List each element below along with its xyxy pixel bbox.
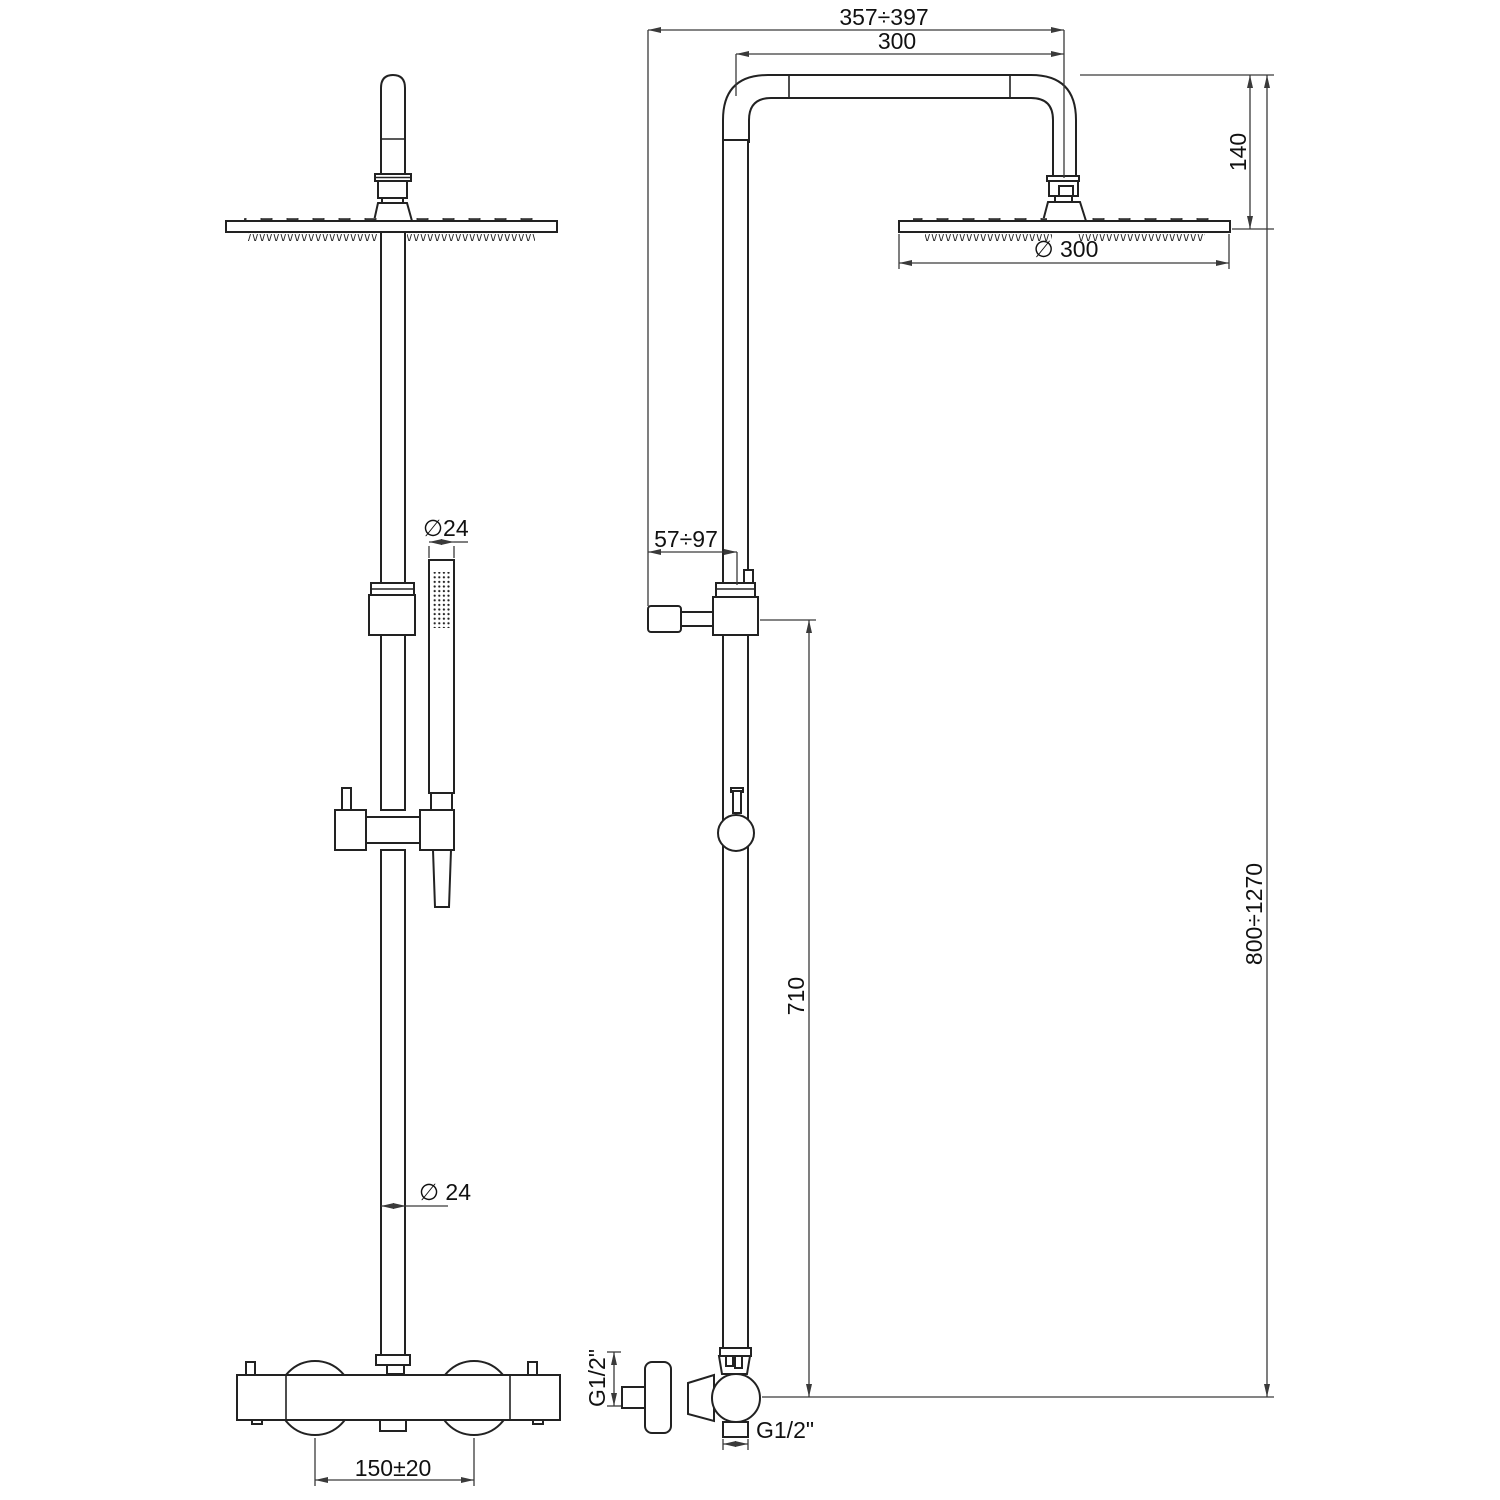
dim-label-column-height: 800÷1270 [1241, 863, 1267, 965]
side-riser-pipe [723, 140, 748, 1348]
dim-label-wall-distance: 57÷97 [654, 526, 718, 552]
front-handshower-spray-face [432, 572, 451, 628]
side-slider-body [713, 597, 758, 635]
front-holder-right-block [420, 810, 454, 850]
side-shower-arm [723, 75, 1076, 176]
dim-label-head-diameter: ∅ 300 [1034, 236, 1099, 262]
dimension-slider-height: 710 [760, 620, 816, 1397]
side-view [622, 75, 1230, 1437]
dim-label-side-inlet-thread: G1/2" [584, 1349, 610, 1407]
front-head-nut [378, 181, 407, 198]
side-holder-pin [733, 791, 741, 813]
dimension-column-height: 800÷1270 [762, 75, 1274, 1397]
side-mixer-nut [720, 1348, 751, 1356]
front-mixer-left-pin [246, 1362, 255, 1375]
dim-label-arm-length: 300 [878, 28, 916, 54]
front-mixer-left-foot [252, 1420, 262, 1424]
front-riser-upper [381, 232, 405, 583]
shower-column-drawing: 357÷397 300 140 800÷1270 710 57÷97 [0, 0, 1500, 1500]
side-head-cone [1043, 202, 1086, 221]
dim-label-riser-diameter: ∅ 24 [419, 1179, 471, 1205]
dim-label-arm-reach: 357÷397 [839, 4, 928, 30]
side-mixer-valve-body [712, 1374, 760, 1422]
dim-label-bottom-outlet-thread: G1/2" [756, 1417, 814, 1443]
front-holder-saddle [366, 817, 420, 843]
front-nozzles-left [248, 232, 378, 241]
front-handshower-handle [433, 850, 451, 907]
side-head-nut-detail [1059, 186, 1073, 196]
front-mixer-right-foot [533, 1420, 543, 1424]
side-mixer-body-cone [688, 1375, 714, 1421]
side-mixer-outlet-stub [723, 1422, 748, 1437]
side-slider-flange [716, 583, 755, 597]
side-head-plate [899, 221, 1230, 232]
side-holder-knob [718, 815, 754, 851]
front-holder-left-block [335, 810, 366, 850]
front-coupling-body [369, 595, 415, 635]
side-holder-clip [744, 570, 753, 583]
front-view [226, 75, 560, 1435]
dimension-inlet-centers: 150±20 [315, 1438, 474, 1486]
front-nozzles-right [407, 232, 535, 241]
front-riser-mid [381, 635, 405, 810]
side-mixer-inlet-stub [622, 1387, 645, 1408]
dim-label-inlet-centers: 150±20 [355, 1455, 432, 1481]
side-mixer-knob [645, 1362, 671, 1433]
dimension-handshower-diameter: ∅24 [423, 515, 469, 558]
side-wall-bracket-knob [648, 606, 681, 632]
front-head-plate [226, 221, 557, 232]
dim-label-slider-height: 710 [783, 977, 809, 1015]
dimension-side-inlet-thread: G1/2" [584, 1349, 621, 1407]
dim-label-head-drop: 140 [1225, 133, 1251, 171]
dim-label-handshower-diameter: ∅24 [423, 515, 469, 541]
technical-drawing-page: 357÷397 300 140 800÷1270 710 57÷97 [0, 0, 1500, 1500]
front-handshower-connector [431, 793, 452, 810]
side-mixer-connector-detail1 [726, 1356, 733, 1366]
side-mixer-connector-detail2 [735, 1356, 742, 1368]
front-holder-pin [342, 788, 351, 812]
front-mixer-outlet [380, 1420, 406, 1431]
front-riser-lower [381, 850, 405, 1355]
dimension-head-drop: 140 [1080, 75, 1274, 229]
front-mixer-connector-detail [387, 1365, 404, 1374]
front-riser-top-cap [381, 75, 405, 174]
side-wall-bracket-arm [681, 612, 713, 626]
front-head-cone [374, 203, 412, 221]
front-mixer-connector [376, 1355, 410, 1365]
front-mixer-right-pin [528, 1362, 537, 1375]
